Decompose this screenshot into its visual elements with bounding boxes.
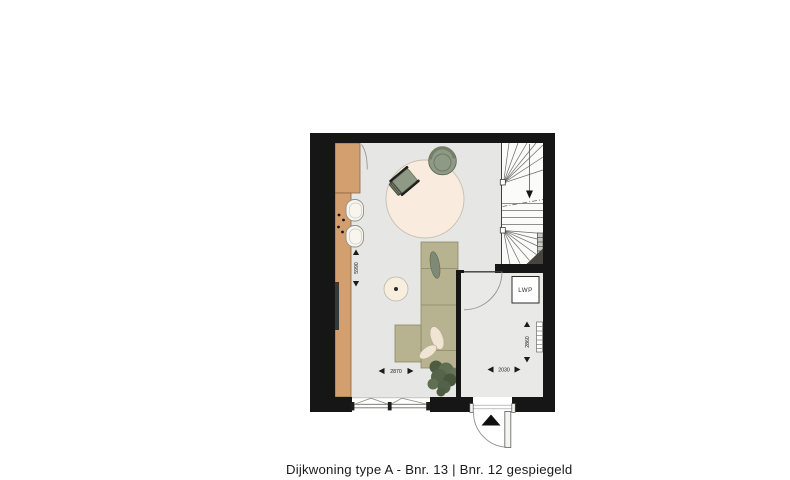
stair-newel (500, 228, 505, 234)
door-head (461, 270, 464, 273)
heat-pump-label: LWP (518, 287, 532, 294)
heat-pump-unit: LWP (512, 277, 539, 304)
dim-label: 5990 (354, 262, 360, 274)
floor-lamp (384, 277, 408, 301)
front-door (470, 404, 515, 448)
armchair (429, 147, 457, 175)
staircase (500, 143, 543, 273)
hall-partition-wall (456, 270, 461, 397)
window-opening-mark (392, 398, 427, 404)
window-opening-mark (355, 398, 388, 404)
stair-newel (500, 180, 505, 186)
kitchen-tall-cabinet (335, 143, 360, 193)
front-door-panel (505, 412, 511, 448)
wall-top (310, 133, 555, 143)
door-jamb (512, 404, 515, 413)
entry-arrow-icon (482, 415, 501, 426)
kitchen-appliance (335, 282, 339, 330)
wall-left (310, 133, 335, 412)
floorplan-drawing: LWP (0, 0, 790, 480)
floorplan-page: LWP (0, 0, 790, 480)
radiator (537, 322, 543, 352)
wall-right (543, 133, 555, 412)
window-jamb (351, 402, 355, 410)
stair-base-wall (495, 264, 543, 273)
dim-label: 2860 (525, 336, 531, 348)
dim-label: 2870 (390, 369, 402, 375)
door-jamb (470, 404, 473, 413)
stair-area (501, 143, 543, 273)
window-jamb (388, 402, 392, 410)
wall-bottom-middle (430, 397, 473, 412)
wall-bottom-left (310, 397, 352, 412)
wall-bottom-right (512, 397, 555, 412)
plan-caption: Dijkwoning type A - Bnr. 13 | Bnr. 12 ge… (286, 462, 572, 477)
sofa-chaise (395, 325, 421, 362)
round-rug (386, 160, 464, 238)
living-room-window (351, 398, 430, 411)
window-jamb (426, 402, 430, 410)
dim-label: 2030 (498, 367, 510, 373)
